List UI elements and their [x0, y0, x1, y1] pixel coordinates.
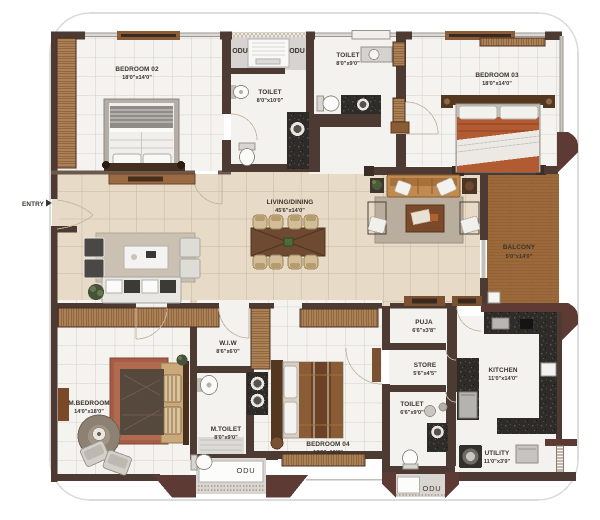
svg-text:5'0"x14'0": 5'0"x14'0"	[506, 254, 533, 260]
svg-text:ODU: ODU	[232, 48, 248, 55]
svg-text:TOILET: TOILET	[400, 401, 423, 408]
svg-text:12'0"x16'0": 12'0"x16'0"	[313, 450, 343, 456]
svg-text:LIVING/DINING: LIVING/DINING	[267, 199, 314, 206]
svg-text:6'6"x9'0": 6'6"x9'0"	[400, 410, 424, 416]
svg-text:8'0"x10'0": 8'0"x10'0"	[257, 98, 284, 104]
svg-text:11'0"x14'0": 11'0"x14'0"	[488, 376, 518, 382]
svg-text:45'6"x14'0": 45'6"x14'0"	[275, 208, 305, 214]
svg-text:11'0"x3'9": 11'0"x3'9"	[484, 459, 511, 465]
svg-text:M.TOILET: M.TOILET	[211, 426, 242, 433]
svg-text:M.BEDROOM: M.BEDROOM	[68, 400, 109, 407]
svg-text:ODU: ODU	[422, 484, 441, 493]
svg-text:BALCONY: BALCONY	[503, 244, 536, 251]
svg-text:ENTRY: ENTRY	[22, 201, 45, 208]
svg-text:BEDROOM 02: BEDROOM 02	[115, 66, 159, 73]
svg-text:ODU: ODU	[236, 466, 255, 475]
svg-text:8'0"x9'0": 8'0"x9'0"	[336, 61, 360, 67]
svg-text:KITCHEN: KITCHEN	[488, 367, 517, 374]
svg-text:14'0"x18'0": 14'0"x18'0"	[74, 409, 104, 415]
svg-text:W.I.W: W.I.W	[219, 340, 237, 347]
svg-text:8'0"x9'0": 8'0"x9'0"	[214, 435, 238, 441]
svg-text:STORE: STORE	[414, 362, 437, 369]
svg-text:TOILET: TOILET	[336, 52, 359, 59]
svg-text:18'0"x14'0": 18'0"x14'0"	[482, 81, 512, 87]
svg-text:TOILET: TOILET	[258, 89, 281, 96]
svg-text:18'0"x14'0": 18'0"x14'0"	[122, 75, 152, 81]
svg-text:8'6"x6'0": 8'6"x6'0"	[216, 349, 240, 355]
svg-text:ODU: ODU	[289, 48, 305, 55]
svg-text:PUJA: PUJA	[415, 319, 433, 326]
svg-text:5'6"x4'5": 5'6"x4'5"	[413, 371, 437, 377]
svg-text:6'6"x3'8": 6'6"x3'8"	[412, 328, 436, 334]
svg-text:BEDROOM 03: BEDROOM 03	[475, 72, 519, 79]
svg-text:BEDROOM 04: BEDROOM 04	[306, 441, 350, 448]
svg-text:UTILITY: UTILITY	[485, 450, 510, 457]
